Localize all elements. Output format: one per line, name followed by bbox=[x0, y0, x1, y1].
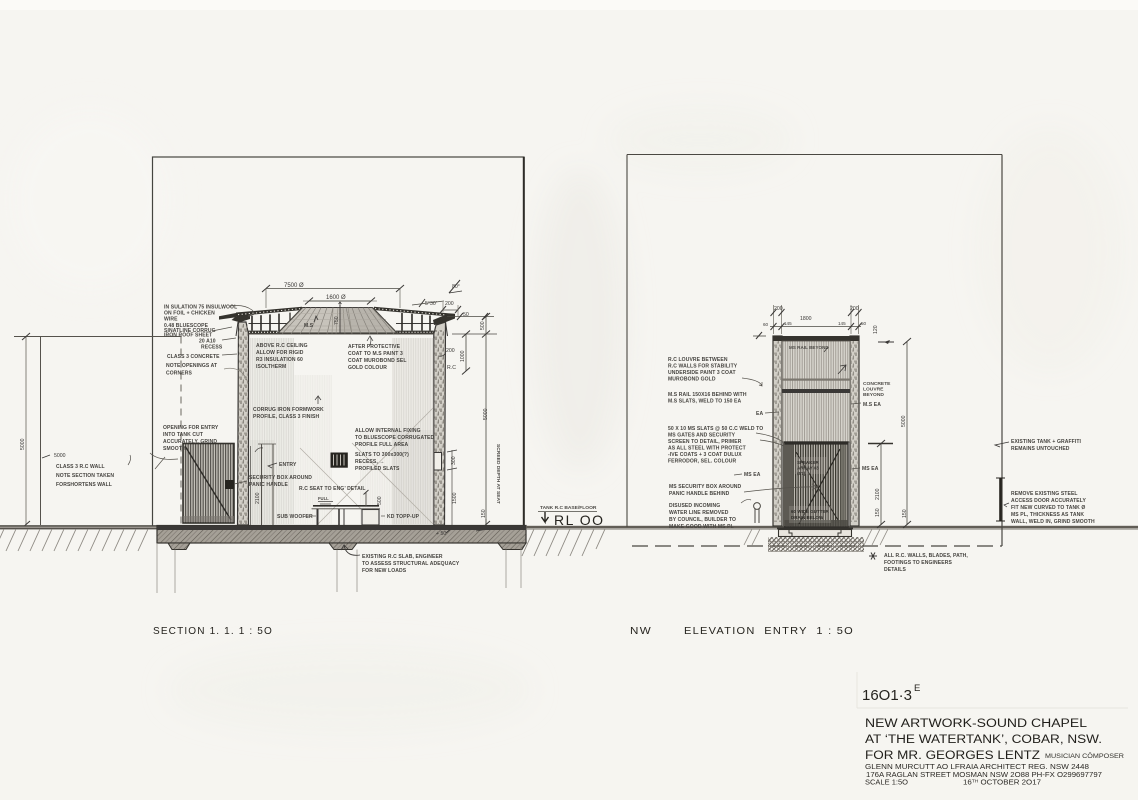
svg-text:PROFILED SLATS: PROFILED SLATS bbox=[355, 466, 400, 472]
svg-text:PANIC HANDLE BEHIND: PANIC HANDLE BEHIND bbox=[669, 491, 730, 497]
svg-text:AT ‘THE WATERTANK’, COBAR, NSW: AT ‘THE WATERTANK’, COBAR, NSW. bbox=[865, 732, 1102, 746]
svg-text:ALLOW INTERNAL FIXING: ALLOW INTERNAL FIXING bbox=[355, 428, 421, 434]
svg-text:AS ALL STEEL WITH PROTECT: AS ALL STEEL WITH PROTECT bbox=[668, 446, 747, 452]
svg-text:SMOOTH: SMOOTH bbox=[163, 446, 186, 452]
svg-text:BEYOND: BEYOND bbox=[863, 392, 884, 398]
svg-text:M.S SLATS, WELD TO 150 EA: M.S SLATS, WELD TO 150 EA bbox=[668, 399, 742, 405]
svg-text:KD TOPP-UP: KD TOPP-UP bbox=[387, 514, 420, 520]
svg-text:OPENING FOR ENTRY: OPENING FOR ENTRY bbox=[163, 425, 219, 431]
svg-text:MS EA: MS EA bbox=[744, 472, 761, 478]
svg-text:AFTER PROTECTIVE: AFTER PROTECTIVE bbox=[348, 344, 401, 350]
svg-text:INTO TANK CUT: INTO TANK CUT bbox=[163, 432, 204, 438]
svg-text:150: 150 bbox=[481, 509, 487, 518]
svg-text:200: 200 bbox=[774, 306, 783, 312]
svg-text:SECTION 1. 1. 1 : 5O: SECTION 1. 1. 1 : 5O bbox=[153, 625, 273, 637]
svg-text:R3 INSULATION 60: R3 INSULATION 60 bbox=[256, 357, 303, 363]
svg-text:EXISTING TANK + GRAFFITI: EXISTING TANK + GRAFFITI bbox=[1011, 439, 1082, 445]
svg-text:EA: EA bbox=[756, 411, 763, 417]
svg-text:COAT TO M.S PAINT 3: COAT TO M.S PAINT 3 bbox=[348, 351, 403, 357]
svg-text:80°: 80° bbox=[452, 284, 460, 290]
svg-text:MS EA: MS EA bbox=[862, 466, 879, 472]
svg-text:50: 50 bbox=[463, 312, 469, 318]
svg-text:REMOVE EXISTING STEEL: REMOVE EXISTING STEEL bbox=[1011, 491, 1078, 497]
svg-text:200: 200 bbox=[850, 306, 859, 312]
svg-text:LOUVRE: LOUVRE bbox=[863, 387, 884, 393]
svg-text:WALL, WELD IN, GRIND SMOOTH: WALL, WELD IN, GRIND SMOOTH bbox=[1011, 519, 1095, 525]
svg-text:ARRAY #3: ARRAY #3 bbox=[797, 466, 819, 471]
svg-text:1600 Ø: 1600 Ø bbox=[326, 295, 346, 301]
svg-text:RECESS: RECESS bbox=[201, 345, 223, 351]
svg-text:E: E bbox=[914, 683, 920, 694]
svg-text:FOR MR. GEORGES LENTZ: FOR MR. GEORGES LENTZ bbox=[865, 748, 1041, 762]
svg-text:NOTE OPENINGS AT: NOTE OPENINGS AT bbox=[166, 363, 218, 369]
svg-text:R.C: R.C bbox=[447, 365, 456, 371]
svg-text:TO BLUESCOPE CORRUGATED: TO BLUESCOPE CORRUGATED bbox=[355, 435, 434, 441]
svg-text:-IVE COATS + 3 COAT DULUX: -IVE COATS + 3 COAT DULUX bbox=[668, 452, 742, 458]
svg-text:MAKE GOOD WITH MS PL: MAKE GOOD WITH MS PL bbox=[669, 524, 734, 530]
svg-text:150: 150 bbox=[902, 509, 908, 518]
svg-text:ALLOW FOR RIGID: ALLOW FOR RIGID bbox=[256, 350, 304, 356]
svg-text:ACCESS DOOR ACCURATELY: ACCESS DOOR ACCURATELY bbox=[1011, 498, 1086, 504]
svg-text:MUSICIAN CÔMPOSER: MUSICIAN CÔMPOSER bbox=[1045, 751, 1124, 760]
svg-text:WATER LINE REMOVED: WATER LINE REMOVED bbox=[669, 510, 729, 516]
svg-text:DISUSED INCOMING: DISUSED INCOMING bbox=[669, 503, 720, 509]
svg-text:RL OO: RL OO bbox=[554, 512, 605, 528]
svg-text:60: 60 bbox=[763, 322, 769, 327]
svg-text:750: 750 bbox=[334, 316, 340, 325]
svg-text:200: 200 bbox=[446, 348, 455, 354]
svg-text:150: 150 bbox=[875, 508, 881, 517]
svg-text:145: 145 bbox=[784, 321, 792, 326]
svg-text:SUB WOOFER: SUB WOOFER bbox=[277, 514, 313, 520]
svg-text:PROFILE FULL AREA: PROFILE FULL AREA bbox=[355, 442, 409, 448]
svg-text:R.C SEAT TO ENG’ DETAIL: R.C SEAT TO ENG’ DETAIL bbox=[299, 486, 366, 492]
svg-text:CORRUG IRON FORMWORK: CORRUG IRON FORMWORK bbox=[253, 407, 324, 413]
svg-text:MUROBOND GOLD: MUROBOND GOLD bbox=[668, 377, 716, 383]
svg-text:ELEVATION ENTRY 1 : 5O: ELEVATION ENTRY 1 : 5O bbox=[684, 625, 854, 637]
svg-text:PANIC HANDLE: PANIC HANDLE bbox=[249, 482, 288, 488]
svg-text:60 WIDE GUTTER: 60 WIDE GUTTER bbox=[791, 509, 830, 514]
svg-text:TO ASSESS STRUCTURAL ADEQUACY: TO ASSESS STRUCTURAL ADEQUACY bbox=[362, 561, 460, 567]
svg-text:FORSHORTENS WALL: FORSHORTENS WALL bbox=[56, 482, 112, 488]
svg-text:ABOVE R.C CEILING: ABOVE R.C CEILING bbox=[256, 343, 308, 349]
svg-text:1800: 1800 bbox=[800, 316, 812, 322]
svg-text:NOTE SECTION TAKEN: NOTE SECTION TAKEN bbox=[56, 473, 114, 479]
svg-text:MS RAIL BEYOND: MS RAIL BEYOND bbox=[789, 345, 829, 350]
svg-text:200: 200 bbox=[445, 301, 454, 307]
svg-text:5000: 5000 bbox=[483, 408, 489, 420]
svg-text:5000: 5000 bbox=[901, 415, 907, 427]
svg-text:1500: 1500 bbox=[452, 492, 458, 504]
svg-text:DRAIN BELOW: DRAIN BELOW bbox=[791, 515, 824, 520]
svg-text:5°30': 5°30' bbox=[425, 301, 437, 307]
svg-text:BY COUNCIL, BUILDER TO: BY COUNCIL, BUILDER TO bbox=[669, 517, 736, 523]
svg-text:5000: 5000 bbox=[54, 453, 66, 459]
svg-text:PROFILE, CLASS 3 FINISH: PROFILE, CLASS 3 FINISH bbox=[253, 414, 319, 420]
svg-text:COAT MUROBOND SEL: COAT MUROBOND SEL bbox=[348, 358, 407, 364]
svg-text:2100: 2100 bbox=[875, 488, 881, 500]
svg-text:120: 120 bbox=[873, 325, 879, 334]
svg-text:50 X 10 MS SLATS @ 50 C.C WELD: 50 X 10 MS SLATS @ 50 C.C WELD TO bbox=[668, 426, 763, 432]
svg-text:50: 50 bbox=[861, 321, 867, 326]
svg-text:R.C WALLS FOR STABILITY: R.C WALLS FOR STABILITY bbox=[668, 364, 738, 370]
svg-text:500: 500 bbox=[480, 321, 486, 330]
svg-text:FOOTINGS TO ENGINEERS: FOOTINGS TO ENGINEERS bbox=[884, 560, 952, 566]
svg-text:M.S RAIL 150X16 BEHIND WITH: M.S RAIL 150X16 BEHIND WITH bbox=[668, 392, 747, 398]
svg-text:MS SECURITY BOX AROUND: MS SECURITY BOX AROUND bbox=[669, 484, 742, 490]
svg-text:CLASS 3 CONCRETE: CLASS 3 CONCRETE bbox=[167, 354, 220, 360]
svg-text:GOLD COLOUR: GOLD COLOUR bbox=[348, 365, 387, 371]
svg-text:145: 145 bbox=[838, 321, 846, 326]
svg-text:(5?): (5?) bbox=[797, 471, 806, 476]
svg-text:M.S: M.S bbox=[304, 323, 314, 329]
svg-text:UNDERSIDE PAINT 3 COAT: UNDERSIDE PAINT 3 COAT bbox=[668, 370, 736, 376]
svg-text:5000: 5000 bbox=[20, 438, 26, 450]
svg-text:CONCRETE: CONCRETE bbox=[863, 381, 891, 387]
svg-text:300: 300 bbox=[451, 456, 457, 465]
svg-text:FULL: FULL bbox=[318, 496, 329, 501]
svg-text:RECESS, →: RECESS, → bbox=[355, 459, 385, 465]
svg-text:FOR NEW LOADS: FOR NEW LOADS bbox=[362, 568, 407, 574]
svg-text:ENTRY: ENTRY bbox=[279, 462, 297, 468]
svg-text:EXISTING R.C SLAB, ENGINEER: EXISTING R.C SLAB, ENGINEER bbox=[362, 554, 443, 560]
svg-text:FIT NEW CURVED TO TANK Ø: FIT NEW CURVED TO TANK Ø bbox=[1011, 505, 1085, 511]
svg-text:DETAILS: DETAILS bbox=[884, 567, 906, 573]
svg-text:TANK R.C BASE/FLOOR: TANK R.C BASE/FLOOR bbox=[540, 505, 597, 511]
svg-text:SCALE 1:5O: SCALE 1:5O bbox=[865, 779, 908, 787]
svg-text:NW: NW bbox=[630, 625, 652, 637]
svg-text:CORNERS: CORNERS bbox=[166, 371, 192, 377]
svg-text:MS PL, THICKNESS AS TANK: MS PL, THICKNESS AS TANK bbox=[1011, 512, 1084, 518]
svg-text:SPEAKER: SPEAKER bbox=[797, 460, 820, 465]
svg-text:+ 50: + 50 bbox=[436, 531, 446, 537]
svg-text:ALL R.C. WALLS, BLADES, PATH,: ALL R.C. WALLS, BLADES, PATH, bbox=[884, 553, 968, 559]
svg-text:SECURITY BOX AROUND: SECURITY BOX AROUND bbox=[249, 475, 312, 481]
svg-text:NEW ARTWORK-SOUND CHAPEL: NEW ARTWORK-SOUND CHAPEL bbox=[865, 716, 1087, 730]
svg-text:M.S EA: M.S EA bbox=[863, 402, 881, 408]
svg-text:CLASS 3 R.C WALL: CLASS 3 R.C WALL bbox=[56, 464, 105, 470]
svg-text:FERRODOR, SEL. COLOUR: FERRODOR, SEL. COLOUR bbox=[668, 459, 737, 465]
svg-text:WIRE: WIRE bbox=[164, 317, 178, 323]
svg-text:SCREEN TO DETAIL, PRIMER: SCREEN TO DETAIL, PRIMER bbox=[668, 439, 742, 445]
svg-text:SCREED DEPTH AT SEAT: SCREED DEPTH AT SEAT bbox=[495, 444, 501, 504]
svg-text:REMAINS UNTOUCHED: REMAINS UNTOUCHED bbox=[1011, 446, 1070, 452]
svg-text:500: 500 bbox=[377, 496, 383, 505]
svg-text:ISOLTHERM: ISOLTHERM bbox=[256, 364, 286, 370]
svg-text:1000: 1000 bbox=[460, 350, 466, 362]
svg-text:SLATS TO 300x300(?): SLATS TO 300x300(?) bbox=[355, 452, 409, 458]
svg-text:ACCURATELY, GRIND: ACCURATELY, GRIND bbox=[163, 439, 217, 445]
svg-text:2100: 2100 bbox=[255, 492, 261, 504]
svg-text:R.C LOUVRE BETWEEN: R.C LOUVRE BETWEEN bbox=[668, 357, 728, 363]
svg-text:16O1·3: 16O1·3 bbox=[862, 687, 912, 704]
svg-text:7500 Ø: 7500 Ø bbox=[284, 283, 304, 289]
svg-text:MS GATES AND SECURITY: MS GATES AND SECURITY bbox=[668, 433, 736, 439]
